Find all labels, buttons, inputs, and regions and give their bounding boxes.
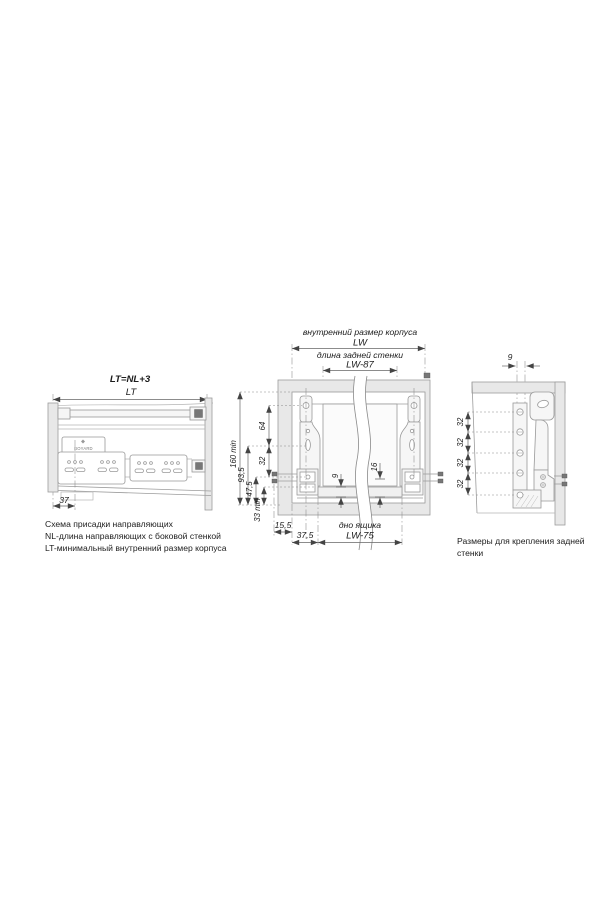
left-diagram-drawing: LT=NL+3 LT BOYARD <box>35 368 230 518</box>
lw87-label: LW-87 <box>346 360 374 371</box>
formula-label: LT=NL+3 <box>110 374 151 385</box>
cabinet-top-edge <box>48 403 213 406</box>
dim-32-label: 32 <box>456 479 465 488</box>
dim-9-label: 9 <box>331 473 340 478</box>
back-wall-length-label: длина задней стенки <box>317 350 403 360</box>
dim-15-5-label: 15,5 <box>275 520 292 530</box>
dim-lw75-label: LW-75 <box>346 531 374 542</box>
dim-93-5-label: 93,5 <box>237 467 246 483</box>
right-diagram-drawing: 9 <box>450 348 585 538</box>
lw-label: LW <box>353 338 368 349</box>
drawer-bottom-label: дно ящика <box>339 520 381 530</box>
dim-32-label: 32 <box>456 438 465 447</box>
dim-47-5-label: 47,5 <box>245 481 254 497</box>
caption-line: стенки <box>457 548 587 560</box>
technical-drawing-page: LT=NL+3 LT BOYARD <box>0 0 600 900</box>
dim-32-chain: 32 32 32 32 <box>456 412 468 495</box>
mounting-bracket-rear <box>130 455 187 481</box>
dim-160min-label: 160 min <box>229 440 238 468</box>
dim-64-label: 64 <box>258 421 267 430</box>
dim-37-label: 37 <box>59 495 70 505</box>
slide-top-rod <box>58 407 206 420</box>
dim-16-label: 16 <box>370 462 379 471</box>
caption-line: Размеры для крепления задней <box>457 536 587 548</box>
cabinet-front-edge <box>48 403 58 492</box>
vertical-dimensions: 160 min 93,5 47,5 33 min 64 32 <box>229 392 269 522</box>
lock-block <box>513 490 541 508</box>
mounting-bracket-front <box>58 452 125 484</box>
inner-size-label: внутренний размер корпуса <box>303 327 418 337</box>
lt-dimension-label: LT <box>126 387 138 398</box>
dim-37-5-label: 37,5 <box>297 530 314 540</box>
dim-33min-label: 33 min <box>253 498 262 521</box>
right-diagram-caption: Размеры для крепления задней стенки <box>457 536 587 559</box>
dim-32-label: 32 <box>258 456 267 465</box>
dim-32-label: 32 <box>456 417 465 426</box>
middle-diagram-drawing: внутренний размер корпуса LW длина задне… <box>228 326 474 558</box>
dim-32-label: 32 <box>456 458 465 467</box>
dim-9-label: 9 <box>508 352 513 362</box>
wall-top-fitting <box>424 373 430 378</box>
bottom-dimensions: 15,5 37,5 дно ящика LW-75 <box>274 520 402 543</box>
brand-logo-text: BOYARD <box>74 446 93 451</box>
brand-logo-plate: BOYARD <box>62 437 105 454</box>
back-wall-plate <box>513 403 527 490</box>
extension-lines <box>468 412 516 495</box>
